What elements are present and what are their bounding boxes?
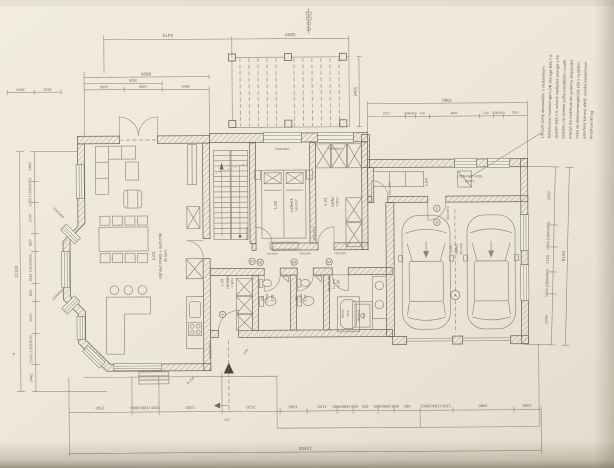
living-left-window-2 bbox=[62, 251, 70, 287]
marker-label: E bbox=[436, 206, 438, 210]
room-name: ŠATNA bbox=[330, 196, 335, 207]
room-area: 16,3m2 bbox=[294, 199, 298, 211]
dim-label: 1425 bbox=[511, 111, 518, 115]
shadow-top bbox=[0, 0, 614, 6]
dim-label: 600(900) bbox=[404, 111, 417, 115]
marker-label: D3 bbox=[292, 260, 296, 264]
room-area: 7,6m2 bbox=[230, 278, 234, 288]
living-left-window-1 bbox=[76, 164, 84, 198]
room-name: KOUPELNA bbox=[327, 276, 331, 291]
dim-label: 1100 bbox=[317, 404, 327, 408]
dim-label: 4905 bbox=[181, 84, 189, 88]
door-size-label: 700/1970 bbox=[334, 251, 346, 255]
dim-label: 3020 bbox=[129, 78, 137, 82]
garage-window-1 bbox=[520, 215, 528, 251]
paper-speck bbox=[13, 353, 15, 355]
room-number: 1.06 bbox=[336, 280, 340, 288]
dim-label: 985 bbox=[404, 404, 411, 408]
shadow-right bbox=[594, 0, 614, 468]
room-number: 1.03 bbox=[323, 197, 328, 206]
dim-label: 2300 bbox=[95, 406, 105, 410]
room-area: 36,1m2 bbox=[459, 243, 463, 255]
closet-window bbox=[317, 132, 353, 142]
dim-label: 875 bbox=[483, 111, 489, 115]
floor-plan-scan: 5475 5800 9600 3020 2400 1800 4905 2400 … bbox=[0, 0, 614, 468]
dim-label: 1445 bbox=[28, 162, 32, 171]
dim-label: 1500 (1000/900) bbox=[29, 334, 33, 363]
dim-label: 3000 bbox=[450, 111, 457, 115]
dim-label: 2300 bbox=[185, 405, 195, 409]
room-name: TECH. MÍSTNOST bbox=[457, 174, 484, 179]
window-dim-label: 1000(900) bbox=[275, 147, 290, 151]
room-name: WC bbox=[260, 296, 264, 301]
living-left-window-3 bbox=[77, 316, 85, 339]
dim-label: 1545 (1500/600) bbox=[29, 253, 33, 282]
dim-label: 1150 bbox=[546, 255, 550, 264]
dim-label: 5800 bbox=[285, 32, 296, 37]
dim-label: 9600 bbox=[140, 71, 151, 76]
tech-window-1 bbox=[455, 158, 477, 167]
terrace-window bbox=[114, 363, 162, 370]
room-area: 7,4m2 bbox=[465, 179, 475, 183]
dim-label: 2400 bbox=[43, 87, 51, 91]
room-area: 3,0m2 bbox=[265, 293, 269, 302]
floor-plan-drawing: 5475 5800 9600 3020 2400 1800 4905 2400 … bbox=[0, 0, 614, 468]
note-line: hmotnost 90 kg bbox=[589, 111, 594, 139]
dim-label: 1200 (1000/900) bbox=[420, 404, 451, 408]
section-marker-label: A bbox=[454, 293, 457, 298]
door-size-label: 800/1970 bbox=[312, 226, 316, 240]
dim-label: 1800 bbox=[139, 84, 147, 88]
dim-label: 875 bbox=[419, 111, 425, 115]
room-number: 1.01 bbox=[151, 251, 156, 260]
dim-label: 1445 bbox=[29, 374, 33, 383]
marker-label: D2 bbox=[258, 260, 262, 264]
dim-label: 7980 bbox=[442, 98, 453, 103]
dim-label: 1000 bbox=[288, 405, 298, 409]
door-size-label: 900/1970 bbox=[446, 206, 450, 220]
dim-label: 1000 (1800/900) bbox=[546, 221, 551, 250]
dim-label: 600(900) bbox=[492, 111, 505, 115]
fixture-label: kout bbox=[361, 313, 365, 319]
dim-label: 1000 (1800/900) bbox=[545, 268, 550, 297]
marker-label: B bbox=[436, 220, 438, 224]
marker-label: D1 bbox=[250, 260, 254, 264]
room-area: 12,4m2 bbox=[332, 278, 336, 289]
dim-label: 320 bbox=[224, 417, 230, 421]
bedroom-window bbox=[263, 133, 301, 143]
dim-label: 600 (600/900) bbox=[373, 404, 399, 408]
dim-label: 600 (600/900) bbox=[332, 404, 358, 408]
room-number: 1.09 bbox=[220, 279, 224, 287]
dim-label: 1000 bbox=[522, 403, 532, 407]
marker-label: D4 bbox=[327, 260, 331, 264]
room-name: OBÝVACÍ POKOJ + KUCHYNĚ bbox=[157, 233, 162, 279]
dim-label: 2120 bbox=[246, 405, 256, 409]
dim-label: 860 bbox=[29, 239, 33, 246]
dim-label: 11100 bbox=[14, 265, 19, 278]
room-number: 1.05 bbox=[449, 245, 453, 253]
dim-label: 2350 bbox=[544, 315, 548, 324]
dim-label: 2400 bbox=[100, 85, 108, 89]
room-name: WC bbox=[294, 296, 298, 301]
room-name: CHODBA bbox=[226, 275, 230, 289]
room-number: 1.04 bbox=[425, 178, 429, 187]
room-name: GARÁŽ bbox=[454, 244, 459, 254]
window-dim-label: 1000(900) bbox=[328, 147, 343, 151]
dim-label: 2325 bbox=[382, 111, 389, 115]
dim-label: 1000 (1000/900) bbox=[129, 405, 160, 409]
dim-label: 8150 bbox=[561, 251, 566, 262]
room-number: 1.02 bbox=[273, 200, 278, 209]
dim-label: 3455 bbox=[353, 86, 358, 96]
room-number: 1.07 bbox=[303, 294, 307, 301]
dim-label: 2650 bbox=[547, 191, 551, 200]
door-size-label: 800/1970 bbox=[388, 182, 392, 196]
dim-label: 1530 bbox=[29, 313, 33, 322]
fixture-label: rohová bbox=[340, 309, 344, 318]
dim-label: 925 bbox=[362, 404, 369, 408]
room-number: 1.08 bbox=[270, 295, 274, 302]
room-area: 3,2m2 bbox=[299, 293, 303, 302]
room-name: LOŽNICE bbox=[289, 198, 294, 212]
room-area: 7,8m2 bbox=[335, 197, 339, 207]
shadow-bottom bbox=[0, 440, 614, 468]
door-size-label: 700/1970 bbox=[266, 252, 278, 256]
fixture-label: vana bbox=[346, 310, 349, 317]
entry-dim-label: 1030(900) bbox=[208, 342, 212, 359]
door-size-label: 800/1970 bbox=[245, 226, 249, 240]
dim-label: 1005 (1500/600) bbox=[28, 177, 32, 206]
dim-label: 3400 bbox=[478, 403, 488, 407]
room-area: 45,5m2 bbox=[164, 250, 168, 263]
fixture-label: sprchový bbox=[356, 309, 360, 321]
door-size-label: 700/1970 bbox=[299, 251, 311, 255]
garage-window-2 bbox=[521, 265, 529, 301]
dim-label: 860 bbox=[29, 289, 33, 296]
dim-label: 5475 bbox=[162, 33, 173, 38]
dim-label: 2400 bbox=[16, 88, 24, 92]
marker-label: B bbox=[221, 313, 223, 317]
dim-label: 1530 bbox=[28, 214, 32, 223]
